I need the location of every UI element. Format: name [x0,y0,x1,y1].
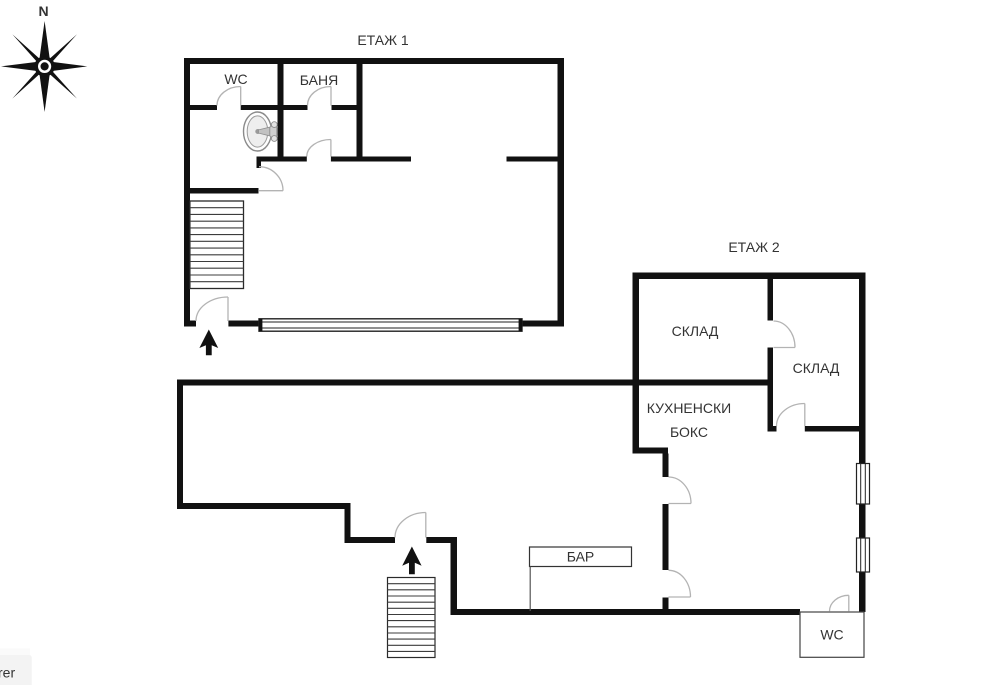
svg-text:БАР: БАР [567,549,595,565]
svg-text:СКЛАД: СКЛАД [672,323,719,339]
svg-text:N: N [38,3,48,19]
svg-text:БОКС: БОКС [670,424,708,440]
svg-text:ЕТАЖ 2: ЕТАЖ 2 [728,239,780,255]
svg-text:WC: WC [820,627,843,643]
svg-text:БАНЯ: БАНЯ [300,72,338,88]
svg-text:СКЛАД: СКЛАД [793,360,840,376]
svg-text:КУХНЕНСКИ: КУХНЕНСКИ [647,400,731,416]
svg-text:rer: rer [0,665,15,681]
svg-text:ЕТАЖ 1: ЕТАЖ 1 [357,32,409,48]
svg-text:WC: WC [224,71,247,87]
